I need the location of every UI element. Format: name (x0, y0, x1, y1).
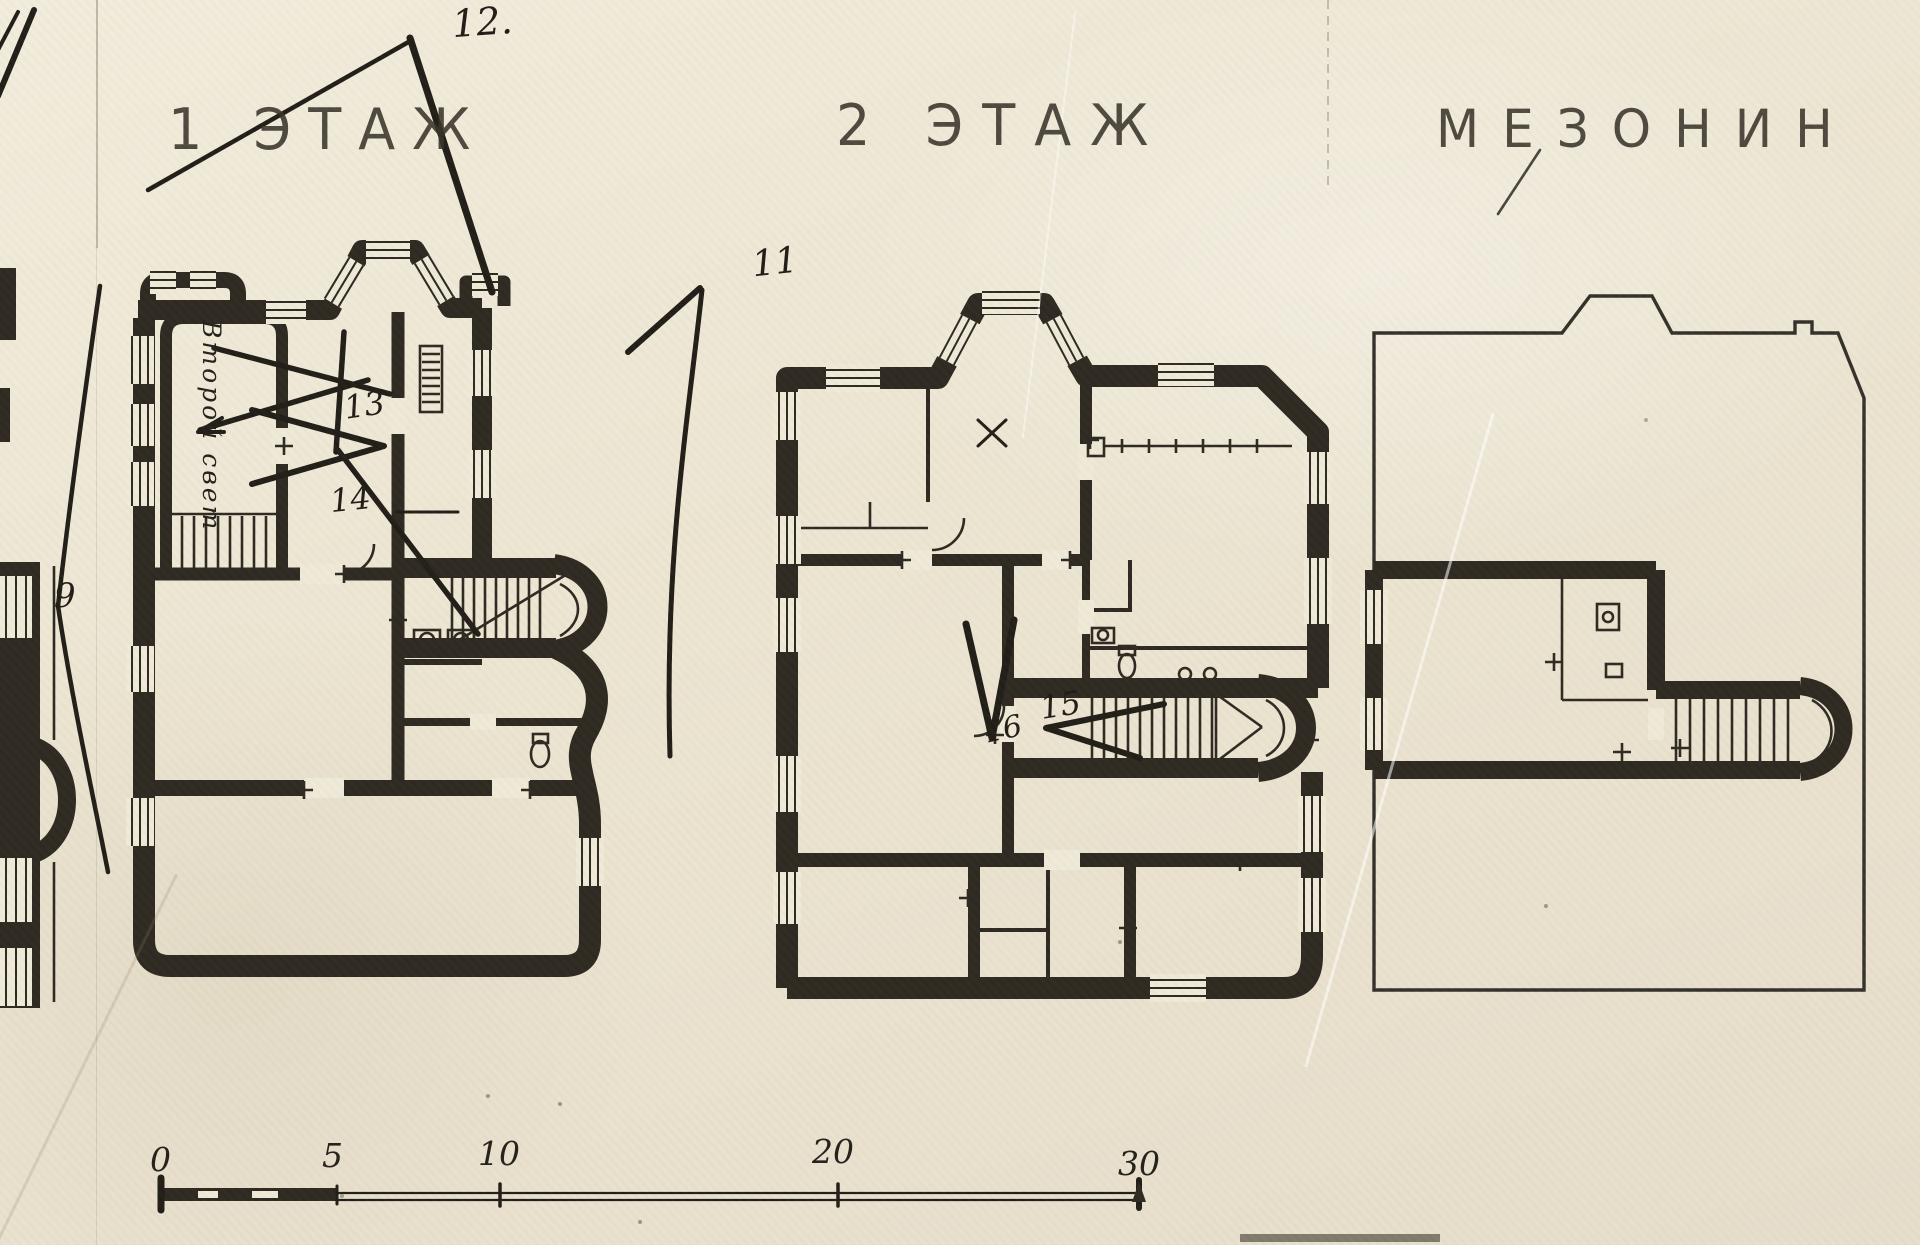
architectural-drawing-svg (0, 0, 1920, 1245)
floor1-title: 1 ЭТАЖ (168, 96, 487, 163)
callout-label-15: 15 (1037, 683, 1083, 727)
scale-label-30: 30 (1118, 1144, 1160, 1183)
scale-label-0: 0 (150, 1140, 171, 1179)
mezzanine-roof-outline (1374, 296, 1864, 990)
floor2-radiator-row (1088, 438, 1292, 456)
mezzanine-staircase (1676, 698, 1832, 762)
left-plan-fragment (0, 10, 67, 1008)
floor2-windows (773, 286, 1332, 1002)
scanned-floor-plan-sheet: 1 ЭТАЖ 2 ЭТАЖ МЕЗОНИН 12. 11 9 13 14 15 … (0, 0, 1920, 1245)
mezzanine-plan (1360, 296, 1864, 990)
second-light-note: Второй свет (197, 320, 226, 532)
mezzanine-fixtures (1597, 604, 1622, 677)
callout-label-12: 12. (451, 0, 514, 46)
callout-label-9: 9 (54, 576, 76, 616)
scale-label-5: 5 (322, 1136, 343, 1175)
mezzanine-survey-ticks (1545, 561, 1689, 761)
callout-label-11: 11 (750, 240, 800, 286)
scale-label-20: 20 (812, 1132, 854, 1171)
floor1-radiator-icon (420, 346, 442, 412)
callout-label-14: 14 (328, 478, 372, 520)
mezzanine-title: МЕЗОНИН (1436, 98, 1856, 159)
floor2-bathroom-fixtures (1092, 628, 1216, 680)
callout-label-13: 13 (342, 383, 388, 426)
floor2-door-openings (902, 444, 1094, 870)
scale-bar (161, 1178, 1146, 1210)
scale-label-10: 10 (478, 1134, 520, 1173)
floor2-title: 2 ЭТАЖ (836, 92, 1167, 159)
floor2-plan (773, 286, 1332, 1002)
